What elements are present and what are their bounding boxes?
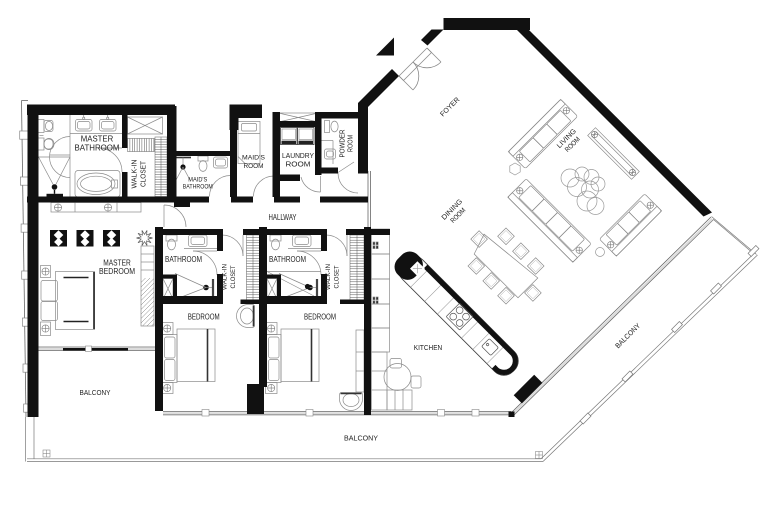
- svg-text:MAID'S: MAID'S: [242, 155, 266, 162]
- svg-text:WALK-IN: WALK-IN: [325, 264, 332, 290]
- svg-text:CLOSET: CLOSET: [141, 160, 148, 187]
- svg-text:BATHROOM: BATHROOM: [165, 255, 202, 264]
- svg-text:WALK-IN: WALK-IN: [132, 160, 139, 189]
- svg-text:KITCHEN: KITCHEN: [414, 343, 443, 352]
- svg-text:BATHROOM: BATHROOM: [269, 255, 306, 264]
- svg-text:ROOM: ROOM: [286, 162, 311, 169]
- svg-text:CLOSET: CLOSET: [230, 265, 237, 288]
- svg-text:BEDROOM: BEDROOM: [304, 312, 336, 321]
- svg-text:ROOM: ROOM: [348, 135, 355, 152]
- svg-text:BATHROOM: BATHROOM: [75, 143, 120, 153]
- svg-text:BATHROOM: BATHROOM: [183, 183, 213, 190]
- svg-text:BEDROOM: BEDROOM: [99, 267, 135, 276]
- svg-text:BALCONY: BALCONY: [80, 388, 111, 397]
- svg-text:HALLWAY: HALLWAY: [269, 213, 298, 222]
- svg-text:BALCONY: BALCONY: [344, 434, 378, 443]
- svg-text:WALK-IN: WALK-IN: [222, 264, 229, 290]
- svg-text:POWDER: POWDER: [340, 130, 347, 158]
- svg-text:LAUNDRY: LAUNDRY: [282, 153, 314, 160]
- svg-text:CLOSET: CLOSET: [334, 265, 341, 288]
- svg-text:BEDROOM: BEDROOM: [188, 312, 220, 321]
- svg-text:ROOM: ROOM: [244, 163, 264, 170]
